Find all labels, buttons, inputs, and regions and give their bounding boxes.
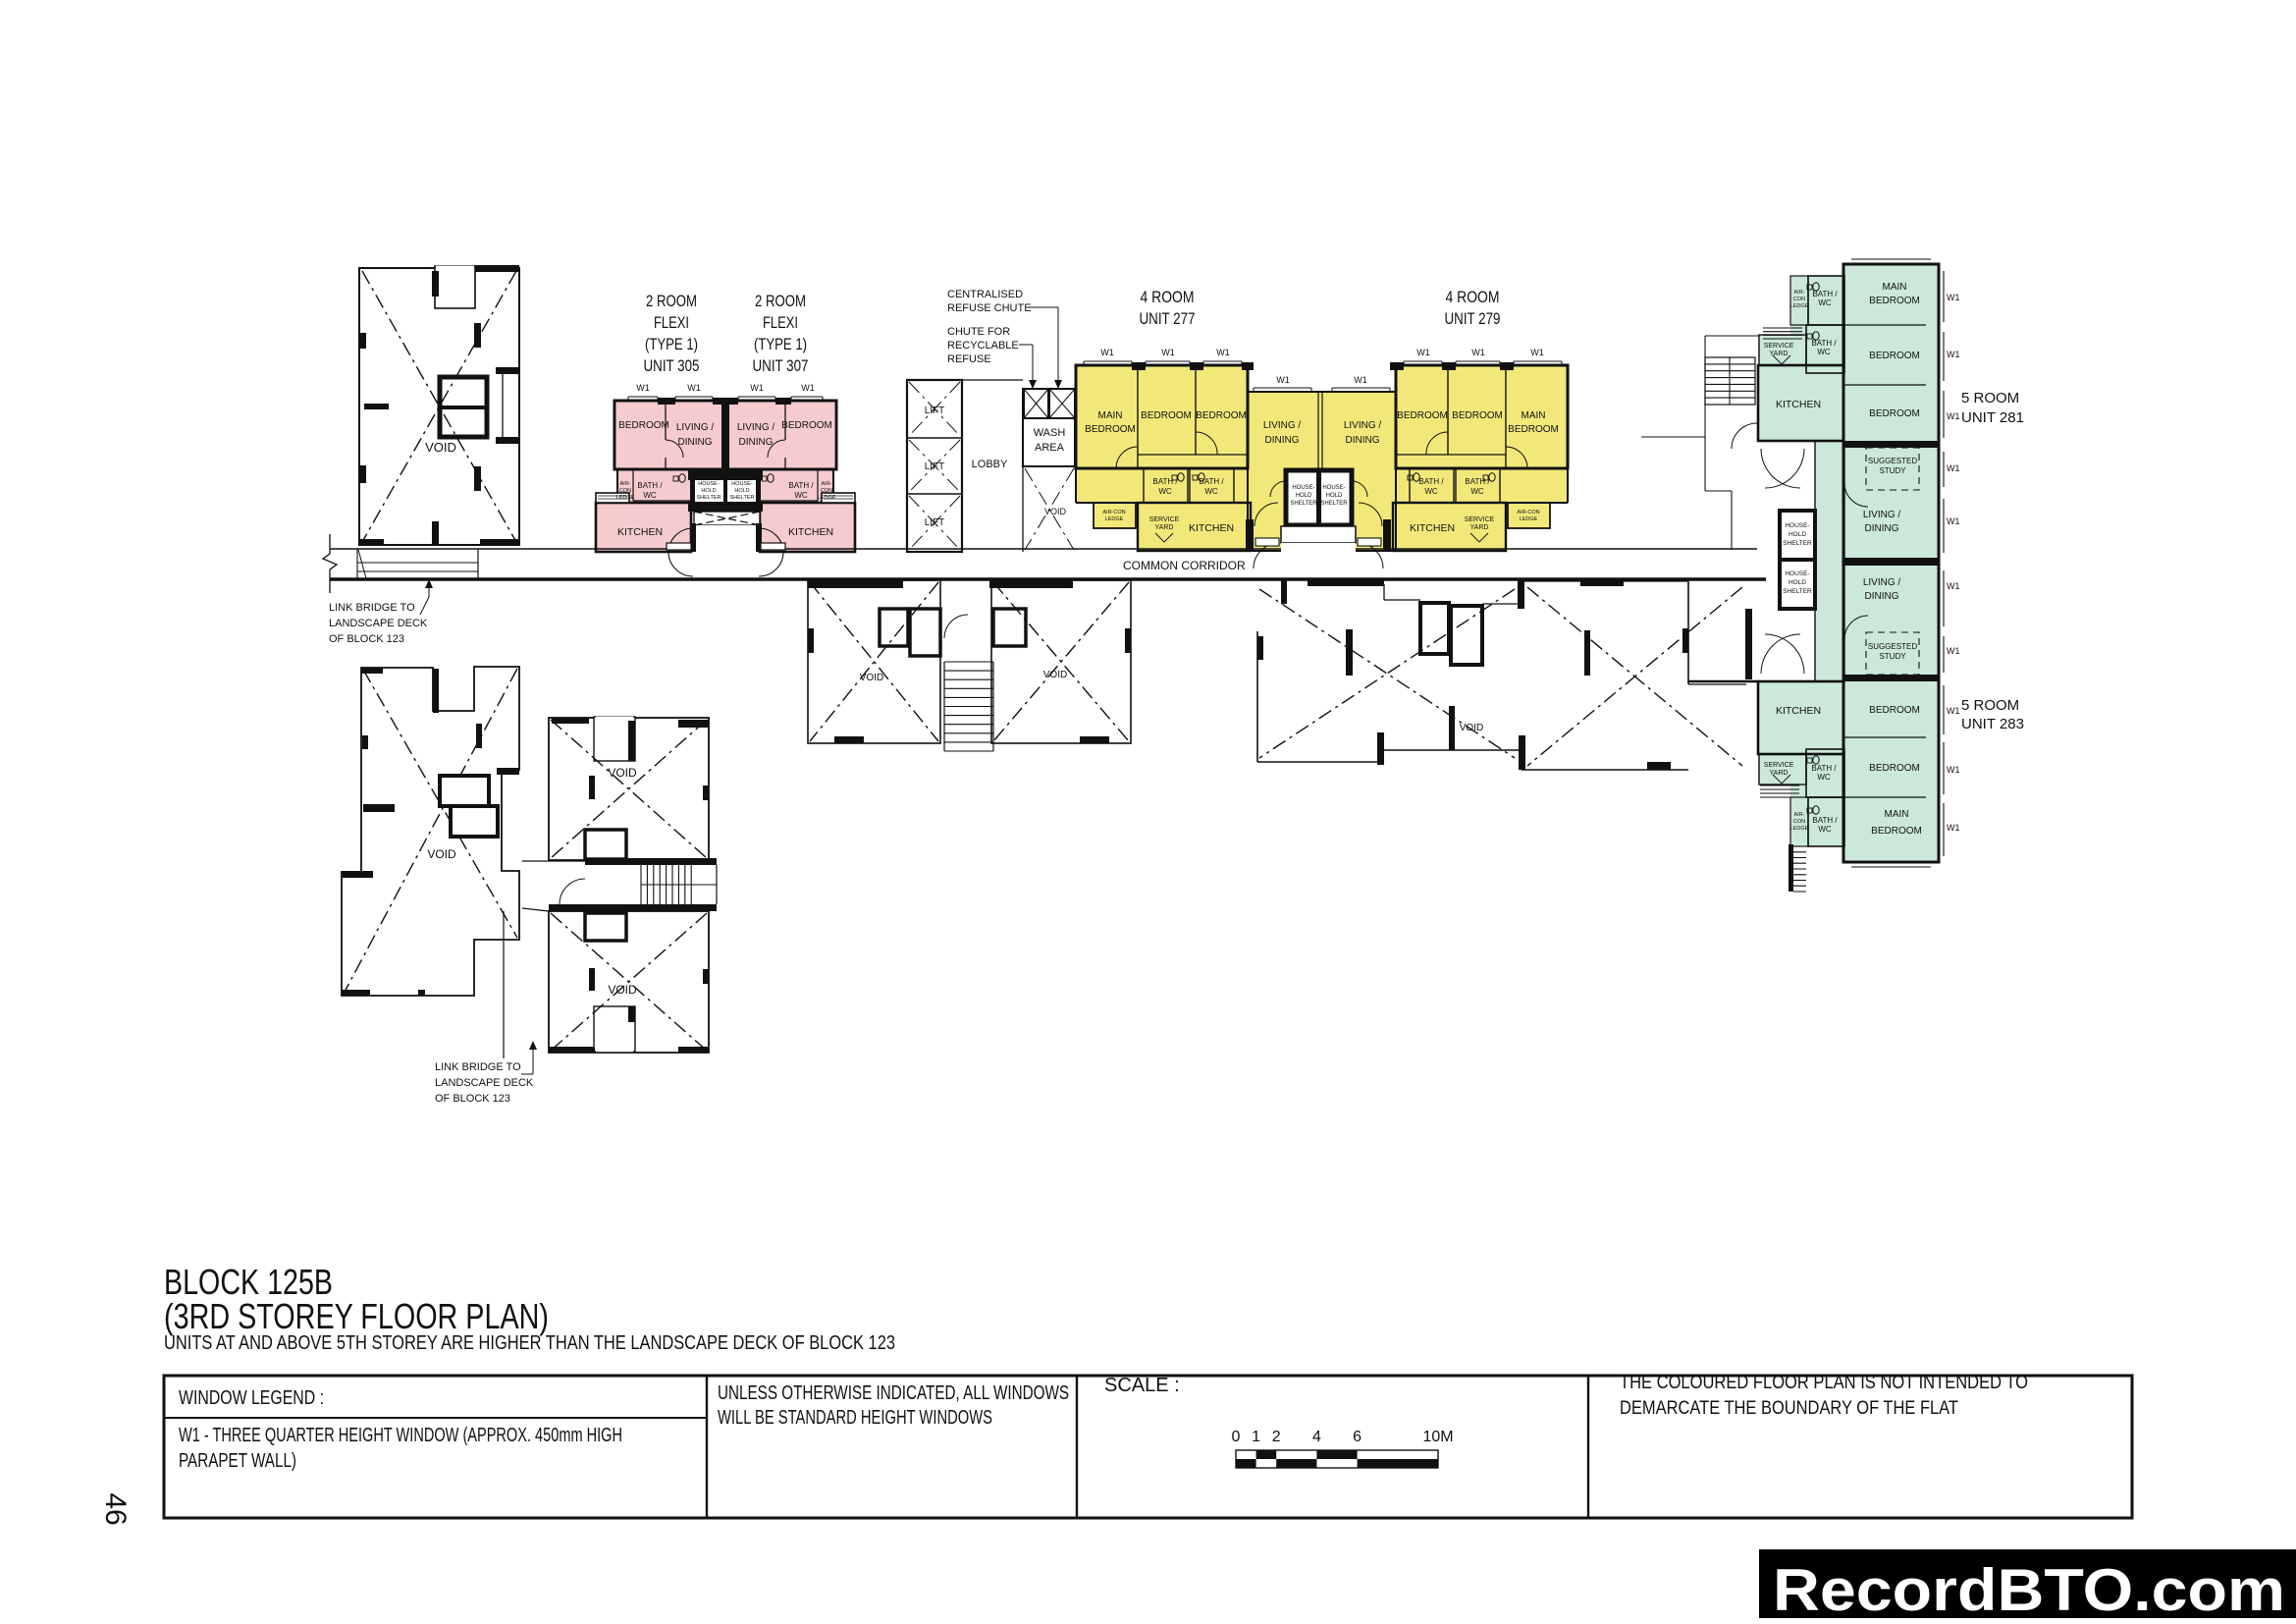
svg-text:SHELTER: SHELTER [697,495,721,501]
svg-text:LIVING /: LIVING / [676,422,715,433]
svg-text:W1: W1 [1947,581,1960,591]
svg-text:BEDROOM: BEDROOM [781,420,832,431]
svg-text:BEDROOM: BEDROOM [1452,410,1503,421]
svg-text:YARD: YARD [1770,351,1789,357]
svg-text:W1: W1 [1354,375,1367,385]
svg-text:BATH /: BATH / [1199,477,1224,486]
svg-text:UNLESS OTHERWISE INDICATED, AL: UNLESS OTHERWISE INDICATED, ALL WINDOWS [718,1382,1069,1404]
svg-text:W1: W1 [1100,348,1114,357]
svg-text:SHELTER: SHELTER [1783,588,1812,595]
svg-text:LIFT: LIFT [925,461,945,472]
svg-text:LANDSCAPE DECK: LANDSCAPE DECK [435,1077,534,1089]
svg-text:BEDROOM: BEDROOM [618,420,669,431]
svg-text:DINING: DINING [1865,591,1899,602]
svg-text:SHELTER: SHELTER [1290,501,1317,507]
svg-text:LOBBY: LOBBY [972,459,1008,470]
svg-text:HOLD: HOLD [734,488,749,494]
svg-text:WASH: WASH [1034,427,1066,439]
svg-text:LEDGE: LEDGE [1790,303,1809,309]
svg-text:CHUTE FOR: CHUTE FOR [947,326,1010,338]
svg-text:AIR-CON: AIR-CON [1102,510,1125,515]
svg-text:WC: WC [1817,348,1831,356]
svg-text:VOID: VOID [1043,670,1067,680]
svg-text:YARD: YARD [1770,770,1789,777]
svg-text:AIR-: AIR- [620,481,631,487]
svg-text:WC: WC [1817,773,1831,782]
svg-text:UNIT 283: UNIT 283 [1961,716,2024,732]
svg-text:LEDGE: LEDGE [616,495,635,501]
svg-text:HOLD: HOLD [1789,579,1806,586]
svg-text:VOID: VOID [1044,507,1067,516]
svg-text:VOID: VOID [1460,723,1483,733]
svg-text:REFUSE: REFUSE [947,353,991,365]
svg-text:WC: WC [1204,487,1218,496]
svg-text:BATH /: BATH / [1418,477,1444,486]
svg-text:W1: W1 [750,383,764,393]
svg-text:RECYCLABLE: RECYCLABLE [947,340,1019,352]
svg-text:W1: W1 [1947,646,1960,656]
svg-text:BEDROOM: BEDROOM [1397,410,1448,421]
svg-text:UNIT 277: UNIT 277 [1140,309,1196,328]
svg-text:10M: 10M [1422,1429,1453,1445]
svg-text:CON: CON [619,488,631,494]
svg-text:BEDROOM: BEDROOM [1141,410,1192,421]
svg-text:SUGGESTED: SUGGESTED [1868,642,1917,651]
svg-text:AIR-: AIR- [1794,812,1805,818]
svg-text:CON: CON [821,488,832,494]
svg-text:LEDGE: LEDGE [818,495,836,501]
svg-text:OF BLOCK 123: OF BLOCK 123 [329,633,404,645]
svg-text:W1: W1 [1530,348,1544,357]
svg-text:4 ROOM: 4 ROOM [1141,288,1195,306]
svg-text:WC: WC [1818,825,1832,834]
svg-text:(TYPE 1): (TYPE 1) [754,335,807,353]
svg-text:DEMARCATE THE BOUNDARY OF THE: DEMARCATE THE BOUNDARY OF THE FLAT [1620,1398,1958,1419]
svg-text:W1: W1 [1947,293,1960,302]
svg-text:LEDGE: LEDGE [1520,516,1538,522]
svg-text:WC: WC [1424,487,1438,496]
svg-text:W1: W1 [1947,823,1960,833]
svg-text:W1: W1 [636,383,650,393]
svg-text:BEDROOM: BEDROOM [1869,296,1920,306]
svg-text:HOLD: HOLD [1326,493,1343,499]
svg-text:HOLD: HOLD [1789,531,1806,538]
svg-text:CON: CON [1793,819,1805,825]
svg-text:VOID: VOID [608,983,637,997]
svg-text:BEDROOM: BEDROOM [1869,408,1920,419]
svg-text:YARD: YARD [1155,524,1174,531]
svg-text:SHELTER: SHELTER [1783,540,1812,547]
svg-text:WINDOW LEGEND :: WINDOW LEGEND : [179,1387,324,1409]
svg-text:W1: W1 [801,383,815,393]
svg-text:LIVING /: LIVING / [1344,420,1382,431]
svg-text:UNIT 279: UNIT 279 [1445,309,1501,328]
svg-text:BATH /: BATH / [637,481,663,490]
svg-text:4 ROOM: 4 ROOM [1446,288,1500,306]
svg-text:HOLD: HOLD [701,488,716,494]
svg-text:LINK BRIDGE TO: LINK BRIDGE TO [435,1061,521,1073]
svg-text:2 ROOM: 2 ROOM [755,292,806,310]
svg-text:BATH /: BATH / [788,481,814,490]
svg-text:REFUSE CHUTE: REFUSE CHUTE [947,302,1032,314]
svg-text:W1: W1 [1947,411,1960,421]
svg-text:MAIN: MAIN [1883,282,1907,293]
svg-text:MAIN: MAIN [1885,809,1909,820]
svg-text:W1: W1 [1947,706,1960,716]
svg-text:AIR-CON: AIR-CON [1517,510,1539,515]
svg-text:AIR-: AIR- [1794,290,1805,296]
svg-text:MAIN: MAIN [1522,410,1546,421]
svg-text:46: 46 [99,1492,132,1525]
svg-text:HOUSE-: HOUSE- [698,481,720,487]
svg-text:WC: WC [794,491,808,500]
svg-text:5 ROOM: 5 ROOM [1961,390,2019,406]
svg-text:LINK BRIDGE TO: LINK BRIDGE TO [329,602,415,614]
svg-text:KITCHEN: KITCHEN [1776,399,1821,410]
svg-text:HOUSE-: HOUSE- [1322,485,1345,491]
svg-text:UNITS AT AND ABOVE 5TH STOREY: UNITS AT AND ABOVE 5TH STOREY ARE HIGHER… [164,1332,895,1354]
svg-text:UNIT 307: UNIT 307 [753,356,809,375]
svg-text:W1: W1 [1216,348,1230,357]
svg-text:HOLD: HOLD [1296,493,1312,499]
svg-text:KITCHEN: KITCHEN [788,526,833,538]
svg-text:BATH /: BATH / [1811,764,1837,773]
svg-text:CENTRALISED: CENTRALISED [947,289,1023,300]
svg-text:UNIT 305: UNIT 305 [644,356,700,375]
svg-text:W1: W1 [1947,765,1960,775]
svg-text:YARD: YARD [1470,524,1489,531]
svg-text:W1: W1 [1276,375,1290,385]
svg-text:WC: WC [1158,487,1172,496]
svg-text:SUGGESTED: SUGGESTED [1868,457,1917,465]
svg-text:BATH /: BATH / [1465,477,1490,486]
svg-text:(TYPE 1): (TYPE 1) [645,335,698,353]
svg-text:2 ROOM: 2 ROOM [646,292,697,310]
svg-text:HOUSE-: HOUSE- [1785,570,1809,577]
svg-text:UNIT 281: UNIT 281 [1961,409,2024,426]
svg-text:AREA: AREA [1035,442,1065,454]
svg-text:LIVING /: LIVING / [1263,420,1302,431]
svg-text:BATH /: BATH / [1812,816,1838,825]
svg-text:KITCHEN: KITCHEN [1776,705,1821,717]
svg-text:PARAPET WALL): PARAPET WALL) [179,1450,296,1472]
svg-text:BEDROOM: BEDROOM [1869,705,1920,716]
svg-text:LIVING /: LIVING / [737,422,775,433]
svg-text:W1: W1 [1947,463,1960,473]
svg-text:BEDROOM: BEDROOM [1871,826,1922,837]
svg-text:W1: W1 [1947,350,1960,359]
svg-text:LIVING /: LIVING / [1863,510,1901,520]
svg-text:W1: W1 [1161,348,1175,357]
svg-text:DINING: DINING [678,437,713,448]
svg-text:SHELTER: SHELTER [1320,501,1348,507]
svg-text:BATH /: BATH / [1152,477,1178,486]
svg-text:2: 2 [1272,1429,1281,1445]
svg-text:0: 0 [1232,1429,1241,1445]
svg-text:BEDROOM: BEDROOM [1196,410,1247,421]
svg-text:DINING: DINING [739,437,774,448]
svg-text:LEDGE: LEDGE [1790,826,1809,832]
svg-text:FLEXI: FLEXI [654,313,689,332]
svg-text:LANDSCAPE DECK: LANDSCAPE DECK [329,618,428,629]
svg-text:HOUSE-: HOUSE- [1785,522,1809,529]
svg-text:KITCHEN: KITCHEN [1410,522,1455,534]
svg-text:KITCHEN: KITCHEN [617,526,663,538]
svg-text:AIR-: AIR- [822,481,832,487]
svg-text:CON: CON [1793,297,1805,302]
svg-text:FLEXI: FLEXI [763,313,798,332]
svg-text:HOUSE-: HOUSE- [731,481,753,487]
svg-text:WC: WC [643,491,657,500]
svg-text:VOID: VOID [427,847,456,861]
svg-text:HOUSE-: HOUSE- [1292,485,1314,491]
svg-text:BEDROOM: BEDROOM [1508,424,1559,435]
svg-text:SHELTER: SHELTER [730,495,755,501]
svg-text:W1: W1 [1947,516,1960,526]
svg-text:RecordBTO.com: RecordBTO.com [1773,1557,2285,1623]
svg-text:WC: WC [1818,298,1832,307]
svg-text:BEDROOM: BEDROOM [1085,424,1136,435]
svg-text:COMMON CORRIDOR: COMMON CORRIDOR [1123,559,1246,572]
svg-text:WC: WC [1470,487,1484,496]
svg-text:MAIN: MAIN [1098,410,1123,421]
svg-text:VOID: VOID [860,673,883,683]
svg-text:1: 1 [1252,1429,1260,1445]
svg-text:SERVICE: SERVICE [1764,762,1794,769]
svg-text:SERVICE: SERVICE [1149,516,1180,523]
svg-text:VOID: VOID [425,440,456,455]
svg-text:STUDY: STUDY [1879,466,1906,475]
svg-text:SERVICE: SERVICE [1465,516,1495,523]
svg-text:4: 4 [1312,1429,1321,1445]
svg-text:DINING: DINING [1265,435,1300,446]
svg-text:(3RD STOREY FLOOR PLAN): (3RD STOREY FLOOR PLAN) [164,1296,549,1336]
svg-text:SERVICE: SERVICE [1764,343,1794,350]
svg-text:THE COLOURED FLOOR PLAN IS NOT: THE COLOURED FLOOR PLAN IS NOT INTENDED … [1620,1373,2028,1393]
svg-text:BEDROOM: BEDROOM [1869,351,1920,361]
svg-text:SCALE :: SCALE : [1104,1375,1180,1396]
svg-text:LIFT: LIFT [925,406,945,416]
svg-text:STUDY: STUDY [1879,652,1906,661]
svg-text:WILL BE STANDARD HEIGHT WINDOW: WILL BE STANDARD HEIGHT WINDOWS [718,1407,992,1429]
svg-text:VOID: VOID [608,766,637,780]
svg-text:LIVING /: LIVING / [1863,577,1901,588]
svg-text:DINING: DINING [1346,435,1380,446]
svg-text:5 ROOM: 5 ROOM [1961,697,2019,714]
svg-text:OF BLOCK 123: OF BLOCK 123 [435,1093,510,1105]
svg-text:LEDGE: LEDGE [1105,516,1124,522]
svg-text:W1 - THREE QUARTER HEIGHT WIND: W1 - THREE QUARTER HEIGHT WINDOW (APPROX… [179,1425,622,1446]
svg-text:BEDROOM: BEDROOM [1869,763,1920,774]
svg-text:LIFT: LIFT [925,517,945,528]
svg-text:DINING: DINING [1865,523,1899,534]
svg-text:6: 6 [1353,1429,1362,1445]
svg-text:KITCHEN: KITCHEN [1189,522,1234,534]
svg-text:W1: W1 [1416,348,1430,357]
svg-text:W1: W1 [687,383,701,393]
svg-text:W1: W1 [1471,348,1485,357]
